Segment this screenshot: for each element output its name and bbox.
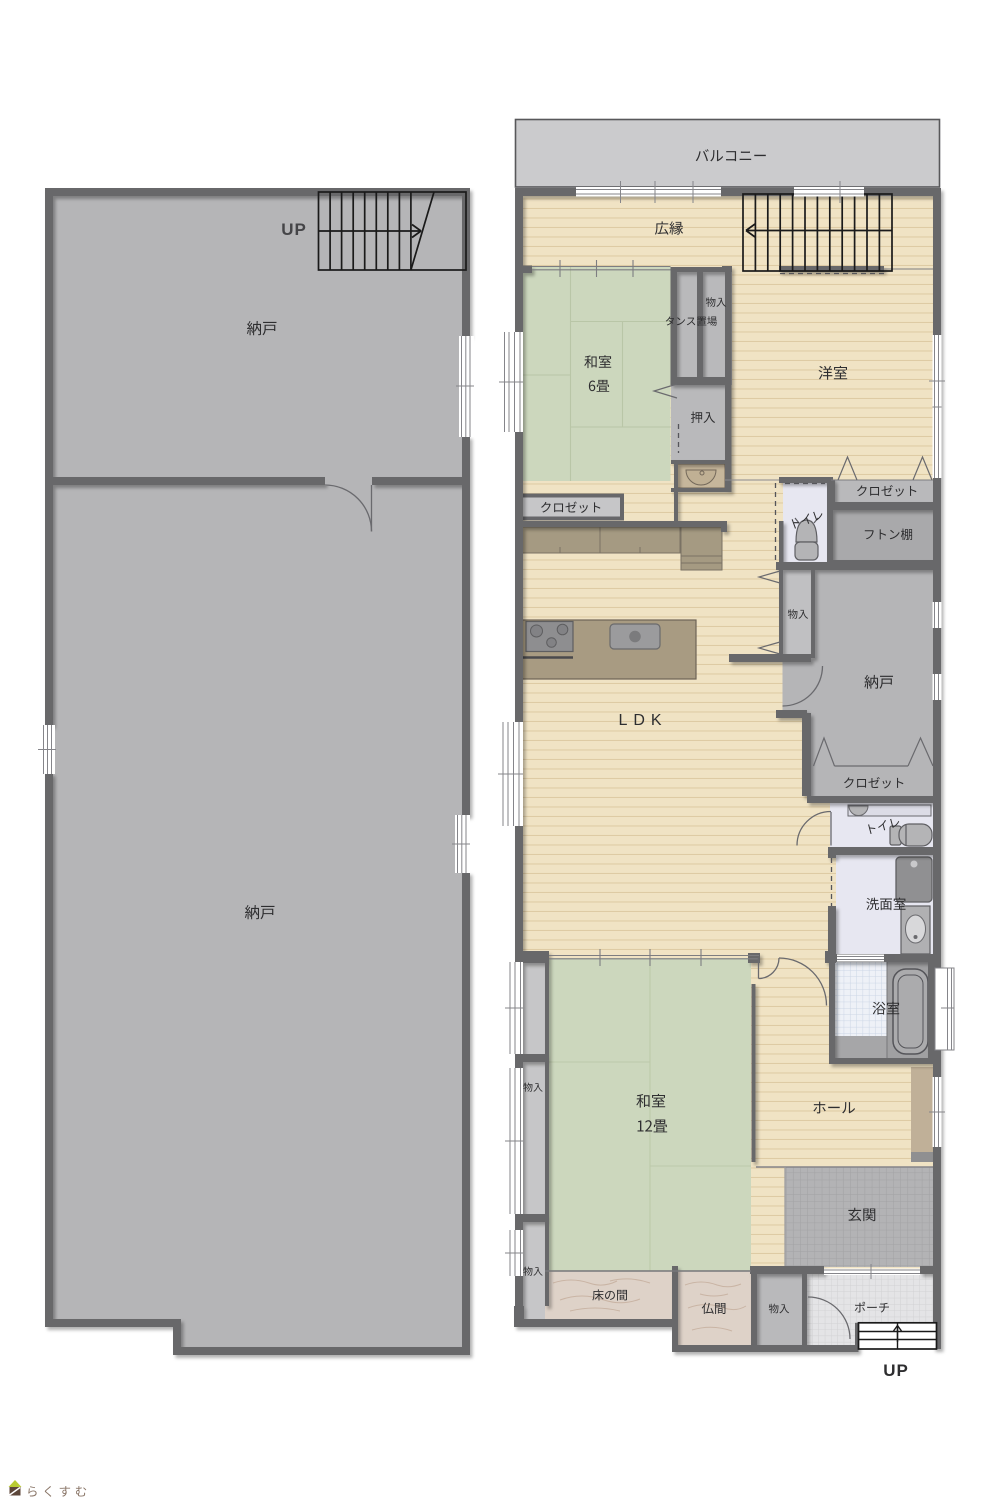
svg-text:LDK: LDK: [618, 712, 667, 729]
svg-text:UP: UP: [883, 1361, 909, 1380]
svg-text:UP: UP: [281, 220, 307, 239]
